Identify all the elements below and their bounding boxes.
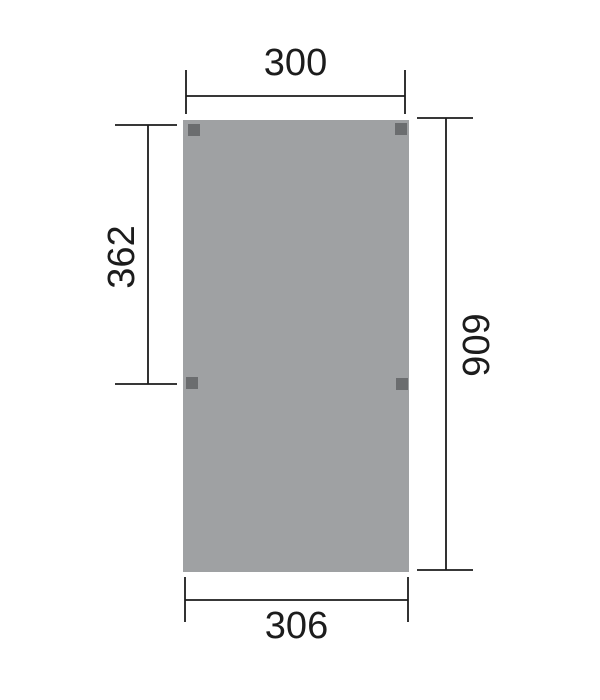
dimension-label-right: 606 <box>456 313 494 376</box>
post-mid-right <box>396 378 408 390</box>
floor-plan-diagram: 300 362 606 306 <box>0 0 600 700</box>
post-mid-left <box>186 377 198 389</box>
dimension-label-top: 300 <box>186 44 405 82</box>
roof-panel <box>183 120 409 572</box>
dimension-label-bottom: 306 <box>185 607 408 645</box>
post-top-right <box>395 123 407 135</box>
floor-plan-canvas <box>0 0 600 700</box>
post-top-left <box>188 124 200 136</box>
dimension-label-left: 362 <box>103 225 141 288</box>
